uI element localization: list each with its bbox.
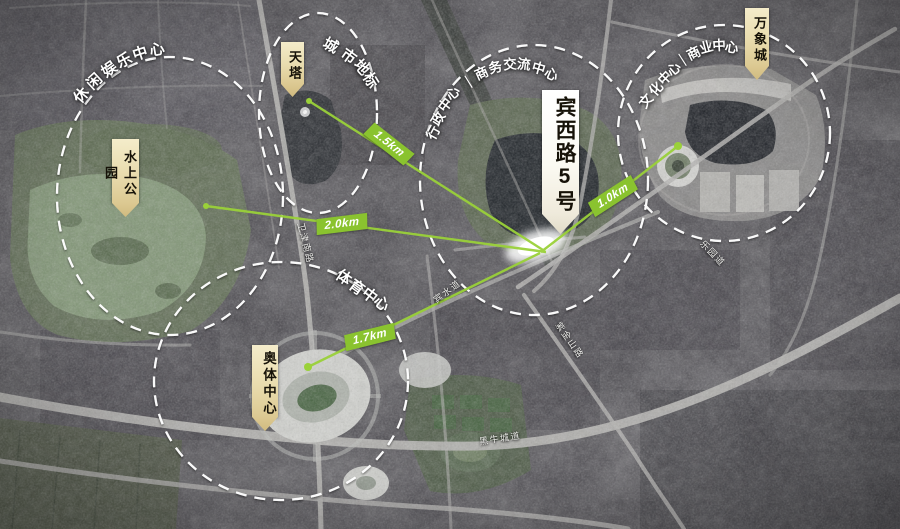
landmark-label-olympic-center: 奥体中心 bbox=[252, 345, 278, 417]
road-label-heiniucheng: 黑牛城道 bbox=[478, 428, 522, 447]
distance-badge-2-0km: 2.0km bbox=[316, 213, 367, 235]
landmark-label-tianta: 天塔 bbox=[281, 42, 304, 84]
zone-label-char: 心 bbox=[724, 35, 740, 57]
zone-label-char: 交 bbox=[503, 53, 518, 74]
zone-label-char: 城 bbox=[319, 32, 342, 58]
zone-label-char: 心 bbox=[148, 37, 166, 60]
site-label: 宾西路5号 bbox=[542, 90, 579, 214]
landmark-label-water-park: 水上公园 bbox=[112, 139, 139, 203]
road-label-leyuan: 乐园道 bbox=[697, 237, 728, 269]
zone-label-char: 流 bbox=[516, 52, 532, 73]
road-label-binshui: 宾水道 bbox=[431, 276, 464, 305]
road-label-zijinshan: 紫金山路 bbox=[553, 319, 588, 361]
landmark-label-mixc: 万象城 bbox=[745, 8, 769, 66]
road-label-weijin-south: 卫津南路 bbox=[295, 221, 318, 265]
distance-badge-1-0km: 1.0km bbox=[588, 175, 638, 217]
distance-badge-1-5km: 1.5km bbox=[363, 122, 414, 165]
distance-badge-1-7km: 1.7km bbox=[344, 323, 396, 351]
map-canvas: 休闲娱乐中心 城市地标 行政中心｜商务交流中心 文化中心｜商业中心 体育中心 水… bbox=[0, 0, 900, 529]
